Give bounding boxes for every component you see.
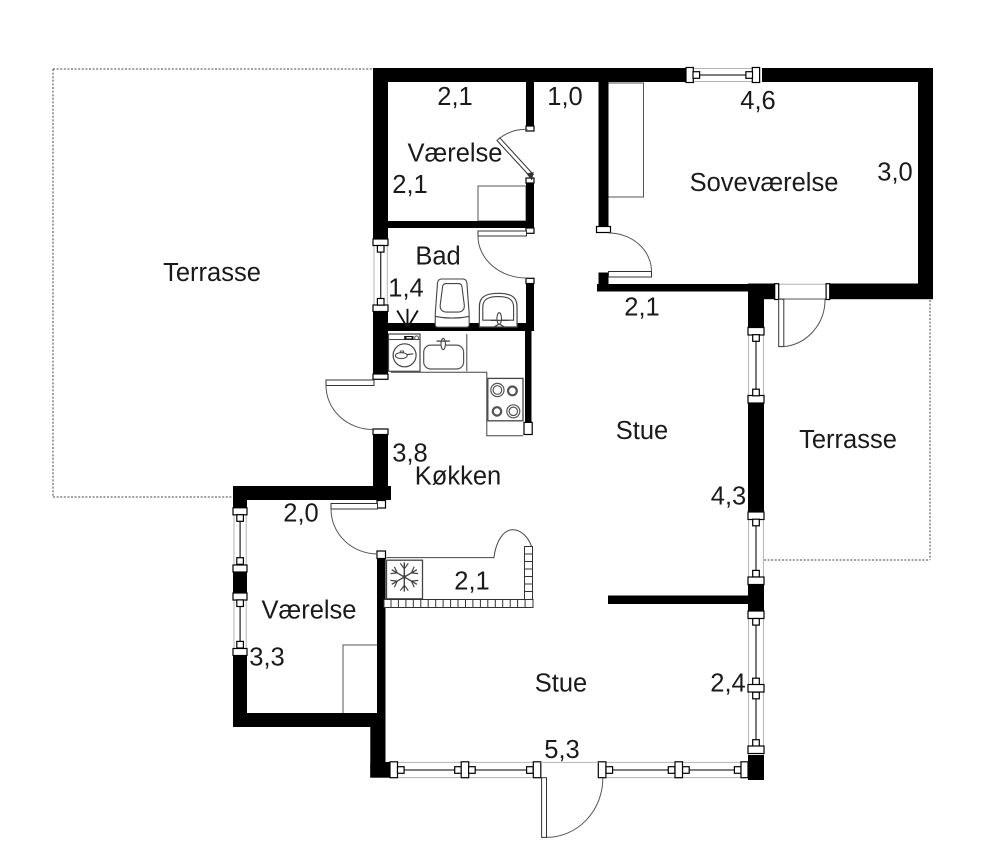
- svg-text:Køkken: Køkken: [415, 463, 501, 491]
- svg-text:Værelse: Værelse: [408, 140, 503, 168]
- svg-text:2,1: 2,1: [454, 568, 489, 596]
- svg-text:2,1: 2,1: [437, 83, 472, 111]
- svg-text:Stue: Stue: [616, 417, 668, 445]
- svg-text:4,6: 4,6: [740, 87, 775, 115]
- svg-text:3,0: 3,0: [877, 159, 912, 187]
- svg-text:Bad: Bad: [415, 243, 460, 271]
- svg-text:Værelse: Værelse: [262, 597, 357, 625]
- svg-text:2,1: 2,1: [624, 294, 659, 322]
- svg-text:2,1: 2,1: [392, 171, 427, 199]
- svg-text:Terrasse: Terrasse: [799, 426, 897, 454]
- svg-text:3,3: 3,3: [249, 644, 284, 672]
- svg-text:2,4: 2,4: [710, 670, 745, 698]
- svg-text:4,3: 4,3: [711, 483, 746, 511]
- svg-text:1,0: 1,0: [547, 83, 582, 111]
- svg-text:1,4: 1,4: [388, 275, 423, 303]
- svg-text:Soveværelse: Soveværelse: [690, 169, 839, 197]
- svg-text:5,3: 5,3: [544, 736, 579, 764]
- svg-text:2,0: 2,0: [283, 500, 318, 528]
- svg-text:Terrasse: Terrasse: [163, 259, 261, 287]
- svg-text:Stue: Stue: [535, 670, 587, 698]
